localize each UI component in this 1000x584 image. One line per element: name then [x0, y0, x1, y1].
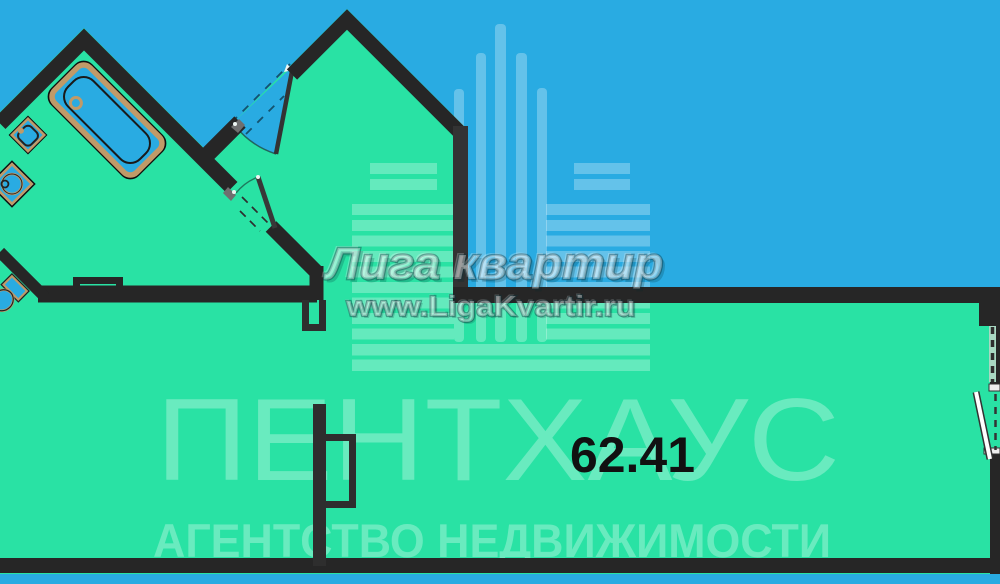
svg-text:Лига квартир: Лига квартир [323, 238, 663, 289]
svg-text:ПЕНТХАУС: ПЕНТХАУС [156, 374, 840, 505]
svg-text:www.LigaKvartir.ru: www.LigaKvartir.ru [345, 291, 635, 323]
svg-text:62.41: 62.41 [570, 427, 695, 483]
